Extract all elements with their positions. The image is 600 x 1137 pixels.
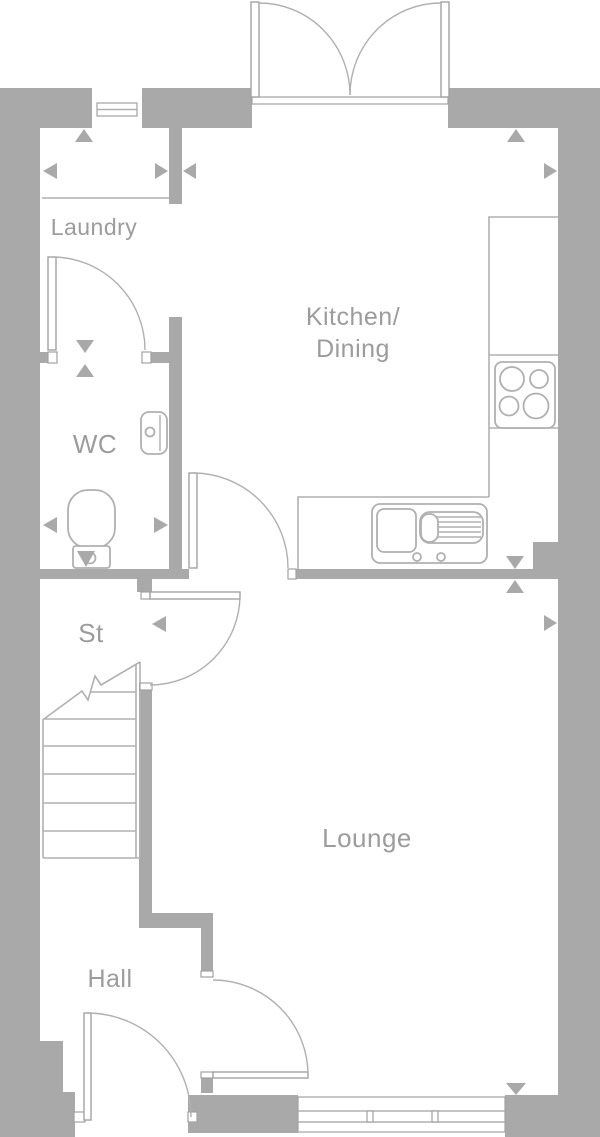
front-door-leaf bbox=[84, 1013, 91, 1120]
hob-icon bbox=[495, 362, 555, 428]
french-doors bbox=[251, 2, 449, 104]
wc-door bbox=[48, 257, 151, 363]
room-label-lounge: Lounge bbox=[322, 823, 412, 853]
kitchen-lounge-wall bbox=[296, 569, 533, 579]
lounge-window-frame bbox=[298, 1097, 505, 1132]
door-swing-arc bbox=[193, 473, 288, 568]
dimension-arrow-down bbox=[76, 340, 94, 353]
wc-bottom-wall bbox=[40, 569, 189, 579]
left-wall-step bbox=[0, 1041, 63, 1092]
french-door-threshold bbox=[252, 97, 448, 104]
laundry-window bbox=[92, 88, 142, 128]
door-swing-arc bbox=[350, 3, 441, 95]
floor-plan: Laundry Kitchen/ Dining WC St Lounge Hal… bbox=[0, 0, 600, 1137]
door-frame bbox=[48, 352, 57, 363]
sink-tap bbox=[437, 553, 445, 561]
dimension-arrow-up bbox=[76, 364, 94, 377]
toilet-bowl bbox=[68, 490, 115, 548]
lounge-window-mullion bbox=[432, 1111, 438, 1122]
dimension-arrow-right bbox=[155, 163, 168, 179]
dimension-arrow-down bbox=[506, 1083, 526, 1095]
door-frame bbox=[142, 352, 151, 363]
door-frame bbox=[201, 1072, 213, 1078]
room-label-storage: St bbox=[78, 618, 104, 648]
basin-icon bbox=[141, 412, 167, 454]
sink-bowl bbox=[377, 509, 416, 552]
room-label-wc: WC bbox=[73, 429, 117, 459]
bottom-left-wall-block bbox=[0, 1092, 75, 1137]
lounge-window bbox=[298, 1097, 505, 1132]
counter-outline bbox=[489, 217, 558, 497]
room-label-hall: Hall bbox=[87, 965, 132, 993]
kitchen-door bbox=[189, 473, 296, 579]
storage-door-stub bbox=[137, 579, 152, 592]
room-label-laundry: Laundry bbox=[51, 214, 138, 240]
right-wall bbox=[558, 88, 600, 1095]
left-wall bbox=[0, 88, 40, 1041]
storage-door-leaf bbox=[150, 592, 240, 599]
hall-lounge-wall-horizontal bbox=[139, 913, 213, 928]
sink-tap bbox=[413, 553, 421, 561]
dimension-arrow-left bbox=[183, 163, 196, 179]
wc-door-right-stub bbox=[151, 352, 169, 363]
sink-drainer-icon bbox=[372, 504, 487, 563]
hob-burner bbox=[530, 370, 548, 388]
room-labels: Laundry Kitchen/ Dining WC St Lounge Hal… bbox=[51, 214, 412, 993]
kitchen-door-leaf bbox=[189, 473, 197, 568]
wc-kitchen-partition bbox=[169, 317, 182, 569]
french-door-right-leaf bbox=[441, 2, 449, 97]
dimension-arrow-left bbox=[43, 517, 57, 533]
door-swing-arc bbox=[213, 980, 308, 1075]
stairs-break-line bbox=[44, 662, 140, 719]
room-label-kitchen: Kitchen/ bbox=[306, 303, 400, 331]
storage-door bbox=[140, 592, 240, 690]
hall-lounge-wall-vertical bbox=[201, 928, 213, 977]
wc-door-left-stub bbox=[40, 352, 48, 363]
lounge-door-leaf bbox=[213, 1072, 308, 1078]
french-door-left-leaf bbox=[251, 2, 259, 97]
dimension-arrows bbox=[43, 129, 557, 1095]
hob-burner bbox=[500, 397, 519, 416]
dimension-arrow-up bbox=[506, 580, 524, 593]
dimension-arrow-left bbox=[43, 163, 57, 179]
door-frame bbox=[288, 569, 296, 579]
lounge-window-mullion bbox=[367, 1111, 373, 1122]
door-swing-arc bbox=[150, 595, 240, 685]
bottom-right-wall-block bbox=[505, 1095, 600, 1137]
hob-burner bbox=[524, 394, 549, 419]
bottom-wall bbox=[188, 1095, 298, 1133]
hob-burner bbox=[500, 367, 524, 391]
door-swing-arc bbox=[259, 3, 350, 95]
lounge-door bbox=[201, 971, 308, 1078]
dimension-arrow-right bbox=[544, 615, 557, 631]
door-frame bbox=[141, 592, 150, 599]
door-swing-arc bbox=[52, 257, 145, 350]
dimension-arrow-up bbox=[75, 129, 93, 142]
sink-half-bowl bbox=[421, 514, 438, 542]
staircase bbox=[43, 662, 140, 858]
laundry-partition-upper bbox=[169, 128, 182, 204]
door-frame bbox=[140, 683, 152, 690]
lounge-door-stub bbox=[201, 1077, 213, 1093]
dimension-arrow-down bbox=[506, 556, 524, 569]
door-frame bbox=[201, 971, 213, 977]
right-wall-pier bbox=[533, 542, 600, 579]
room-label-dining: Dining bbox=[316, 335, 390, 363]
dimension-arrow-right bbox=[154, 517, 168, 533]
dimension-arrow-left bbox=[152, 616, 166, 632]
floor-plan-svg: Laundry Kitchen/ Dining WC St Lounge Hal… bbox=[0, 0, 600, 1137]
door-frame bbox=[188, 1112, 197, 1122]
stairs-side-wall bbox=[139, 683, 152, 928]
wc-door-leaf bbox=[48, 257, 56, 350]
door-swing-arc bbox=[87, 1013, 191, 1117]
basin-drain bbox=[146, 428, 155, 437]
front-door bbox=[74, 1013, 197, 1122]
dimension-arrow-right bbox=[544, 163, 557, 179]
dimension-arrow-up bbox=[507, 129, 525, 142]
